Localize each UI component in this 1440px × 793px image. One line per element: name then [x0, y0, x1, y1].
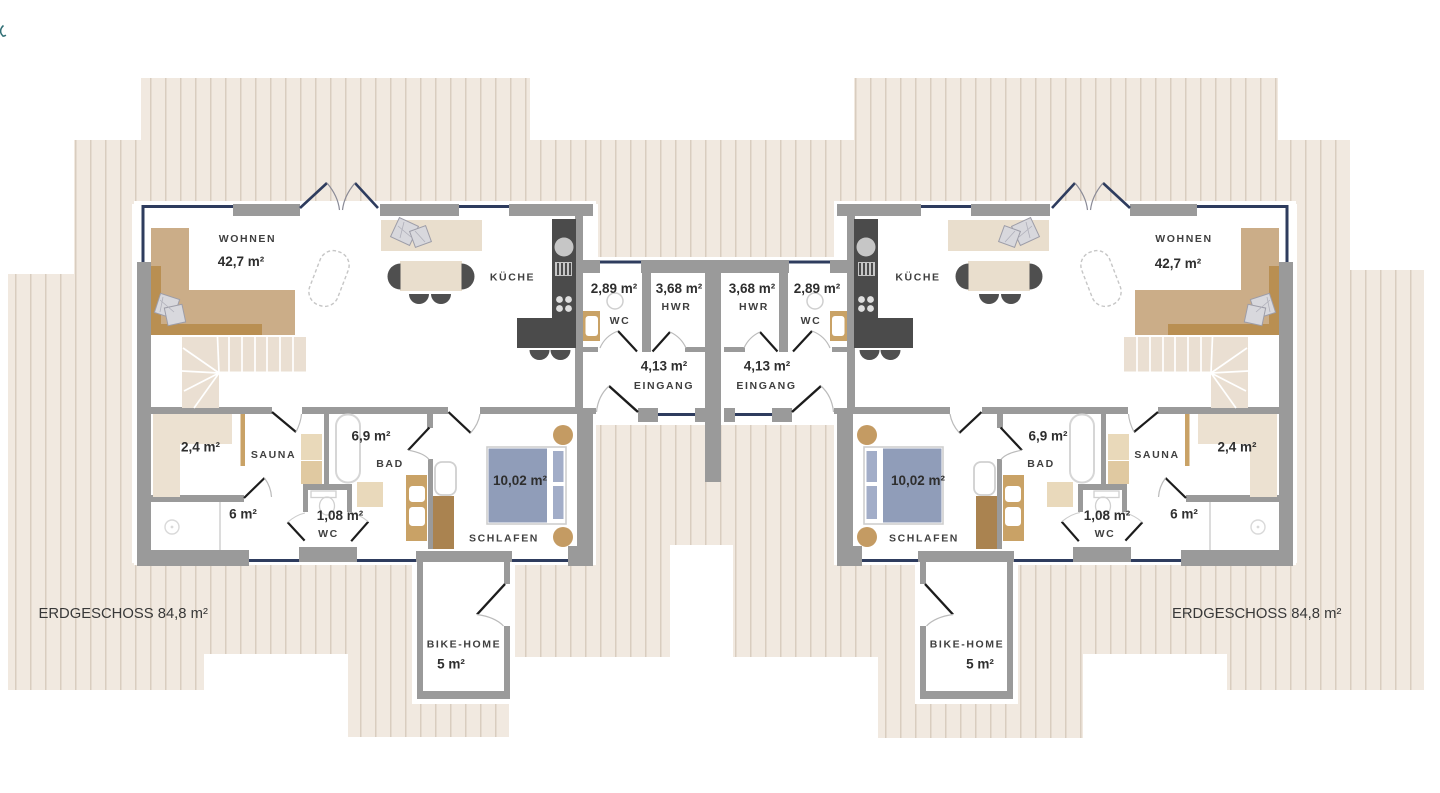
svg-text:4,13 m²: 4,13 m²: [744, 359, 791, 374]
svg-text:WOHNEN: WOHNEN: [219, 233, 276, 245]
svg-text:EINGANG: EINGANG: [736, 380, 796, 392]
svg-text:4,13 m²: 4,13 m²: [641, 359, 688, 374]
svg-text:BAD: BAD: [376, 458, 404, 470]
svg-text:10,02 m²: 10,02 m²: [493, 473, 548, 488]
svg-text:WOHNEN: WOHNEN: [1155, 233, 1212, 245]
svg-text:HWR: HWR: [662, 301, 692, 313]
svg-text:ERDGESCHOSS 84,8 m²: ERDGESCHOSS 84,8 m²: [1172, 606, 1341, 622]
svg-text:SCHLAFEN: SCHLAFEN: [889, 533, 959, 545]
svg-text:6 m²: 6 m²: [229, 507, 257, 522]
svg-text:WC: WC: [1095, 528, 1116, 540]
svg-text:KÜCHE: KÜCHE: [490, 271, 535, 284]
svg-text:BIKE-HOME: BIKE-HOME: [427, 639, 501, 651]
svg-text:BAD: BAD: [1027, 458, 1055, 470]
svg-text:2,4 m²: 2,4 m²: [1217, 440, 1257, 455]
svg-text:EINGANG: EINGANG: [634, 380, 694, 392]
svg-text:3,68 m²: 3,68 m²: [656, 281, 703, 296]
svg-text:1,08 m²: 1,08 m²: [1084, 508, 1131, 523]
svg-text:WC: WC: [318, 528, 339, 540]
svg-text:2,89 m²: 2,89 m²: [794, 281, 841, 296]
svg-text:42,7 m²: 42,7 m²: [1155, 256, 1202, 271]
svg-text:SAUNA: SAUNA: [251, 449, 296, 461]
svg-text:6 m²: 6 m²: [1170, 507, 1198, 522]
svg-text:5 m²: 5 m²: [437, 657, 465, 672]
svg-text:5 m²: 5 m²: [966, 657, 994, 672]
svg-text:BIKE-HOME: BIKE-HOME: [930, 639, 1004, 651]
svg-text:HWR: HWR: [739, 301, 769, 313]
svg-text:ERDGESCHOSS 84,8 m²: ERDGESCHOSS 84,8 m²: [39, 606, 208, 622]
svg-text:2,4 m²: 2,4 m²: [181, 440, 221, 455]
svg-text:6,9 m²: 6,9 m²: [351, 429, 391, 444]
svg-text:SCHLAFEN: SCHLAFEN: [469, 533, 539, 545]
svg-text:2,89 m²: 2,89 m²: [591, 281, 638, 296]
svg-text:1,08 m²: 1,08 m²: [317, 508, 364, 523]
svg-text:3,68 m²: 3,68 m²: [729, 281, 776, 296]
svg-text:WC: WC: [801, 315, 822, 327]
svg-text:42,7 m²: 42,7 m²: [218, 254, 265, 269]
svg-text:10,02 m²: 10,02 m²: [891, 473, 946, 488]
svg-text:6,9 m²: 6,9 m²: [1028, 429, 1068, 444]
svg-text:WC: WC: [610, 315, 631, 327]
svg-text:SAUNA: SAUNA: [1134, 449, 1179, 461]
svg-text:KÜCHE: KÜCHE: [895, 271, 940, 284]
